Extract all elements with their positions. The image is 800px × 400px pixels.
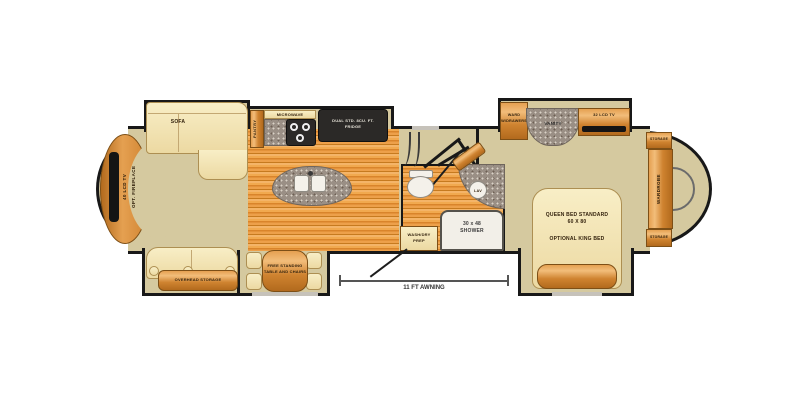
bed-headboard [537,264,617,289]
front-tv-screen [109,152,119,222]
rear-wardrobe-label: WARDROBE [656,152,666,226]
washdry-label-1: WASH/DRY [400,232,438,237]
shower-label-2: SHOWER [440,228,504,235]
rv-floorplan: 40 LCD TV OPT. FIREPLACE SOFA PANTRY MIC… [0,0,800,400]
awning-label-wrap: 11 FT AWNING [340,276,508,294]
dinette-chair-2 [246,273,262,290]
dinette-chair-4 [306,273,322,290]
bed-label-3: OPTIONAL KING BED [532,236,622,243]
microwave-label: MICROWAVE [264,112,316,117]
bedroom-tv-screen [582,126,626,132]
shower-label-1: 30 x 48 [440,221,504,228]
bed-label-1: QUEEN BED STANDARD [532,212,622,219]
pantry-label: PANTRY [252,112,262,146]
washdry-label-2: PREP [400,238,438,243]
ward-label-1: WARD [500,113,528,118]
bed-slide-window [552,292,602,296]
bedroom-tv-label: 32 LCD TV [578,112,630,117]
vanity-label: VANITY [526,121,580,127]
sofa-back-line [148,113,246,114]
stair-window [412,126,439,130]
island-faucet [308,171,313,176]
overhead-storage-label: OVERHEAD STORAGE [158,277,238,282]
fridge-label-2: FRIDGE [318,124,388,129]
rear-storage-bottom-label: STORAGE [646,235,672,239]
rear-storage-top-label: STORAGE [646,137,672,141]
bed-label-2: 60 X 80 [532,219,622,226]
lav-label: LAV [474,189,482,193]
front-fireplace-label: OPT. FIREPLACE [131,150,140,224]
burner-3 [296,134,304,142]
sofa-chaise [198,150,248,180]
island-sink-left [294,175,309,192]
sofa-label: SOFA [156,119,200,126]
fridge-label-1: DUAL STD. 8CU. FT. [318,118,388,123]
front-tv-label: 40 LCD TV [122,156,131,218]
burner-2 [302,123,310,131]
dinette-label-1: FREE STANDING [260,263,310,268]
burner-1 [290,123,298,131]
dinette-slide-window [252,292,318,296]
lav-sink: LAV [469,181,487,199]
ward-label-2: W/DRAWERS [500,119,528,124]
toilet [407,176,434,198]
kitchen-counter [264,119,288,146]
awning-label: 11 FT AWNING [399,285,448,291]
sofa [146,102,248,154]
dinette-label-2: TABLE AND CHAIRS [260,269,310,274]
island-sink-right [311,175,326,192]
